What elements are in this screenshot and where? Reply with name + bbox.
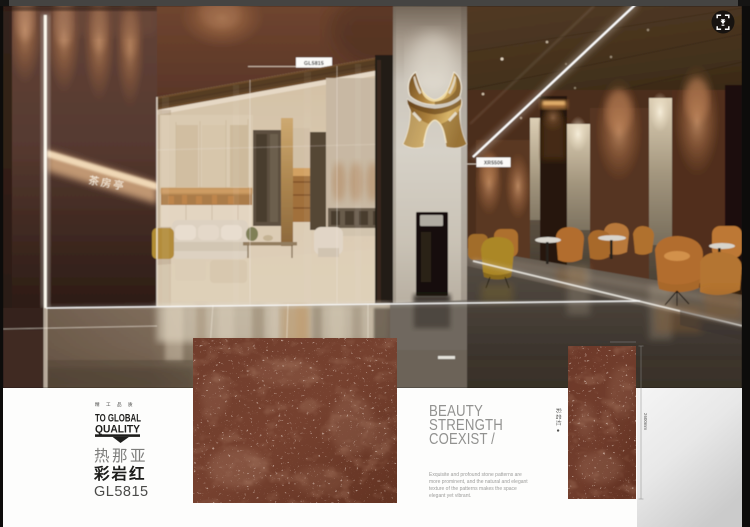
svg-text:texture of the patterns makes: texture of the patterns makes the space bbox=[429, 486, 517, 492]
svg-text:精工品质: 精工品质 bbox=[95, 401, 139, 408]
svg-text:elegant yet vibrant.: elegant yet vibrant. bbox=[429, 493, 471, 499]
svg-text:750mm: 750mm bbox=[595, 340, 610, 345]
svg-text:Exquisite and profound stone p: Exquisite and profound stone patterns ar… bbox=[429, 472, 522, 478]
svg-text:2600mm: 2600mm bbox=[643, 413, 648, 430]
svg-text:more prominent, and the natura: more prominent, and the natural and eleg… bbox=[429, 479, 528, 485]
svg-text:QUALITY: QUALITY bbox=[95, 424, 141, 436]
svg-text:GL5815: GL5815 bbox=[94, 484, 149, 500]
svg-text:GL5815: GL5815 bbox=[304, 61, 324, 67]
svg-text:彩岩红: 彩岩红 bbox=[93, 464, 147, 483]
svg-text:彩岩红 ●: 彩岩红 ● bbox=[555, 408, 563, 433]
svg-text:COEXIST /: COEXIST / bbox=[429, 431, 495, 448]
svg-text:热那亚: 热那亚 bbox=[94, 447, 148, 465]
svg-text:XR5506: XR5506 bbox=[484, 161, 503, 167]
